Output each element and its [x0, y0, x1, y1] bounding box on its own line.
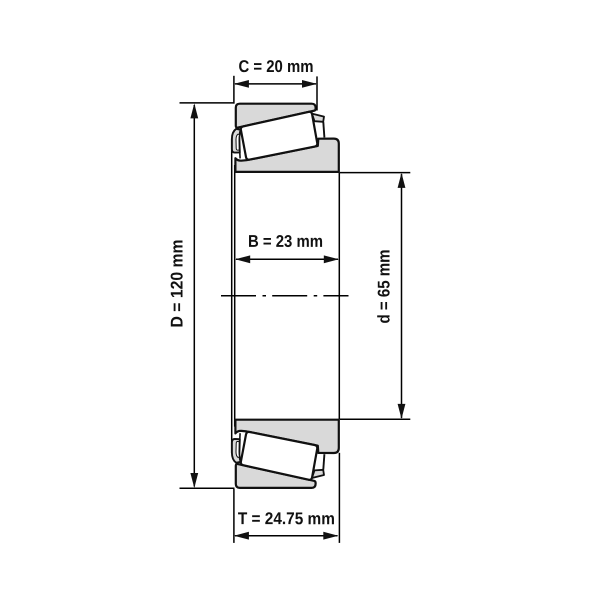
- svg-text:C = 20 mm: C = 20 mm: [238, 57, 313, 76]
- svg-text:B = 23 mm: B = 23 mm: [248, 232, 323, 251]
- svg-text:D = 120 mm: D = 120 mm: [167, 239, 186, 327]
- svg-text:d = 65 mm: d = 65 mm: [375, 250, 394, 324]
- svg-text:T = 24.75 mm: T = 24.75 mm: [238, 509, 335, 528]
